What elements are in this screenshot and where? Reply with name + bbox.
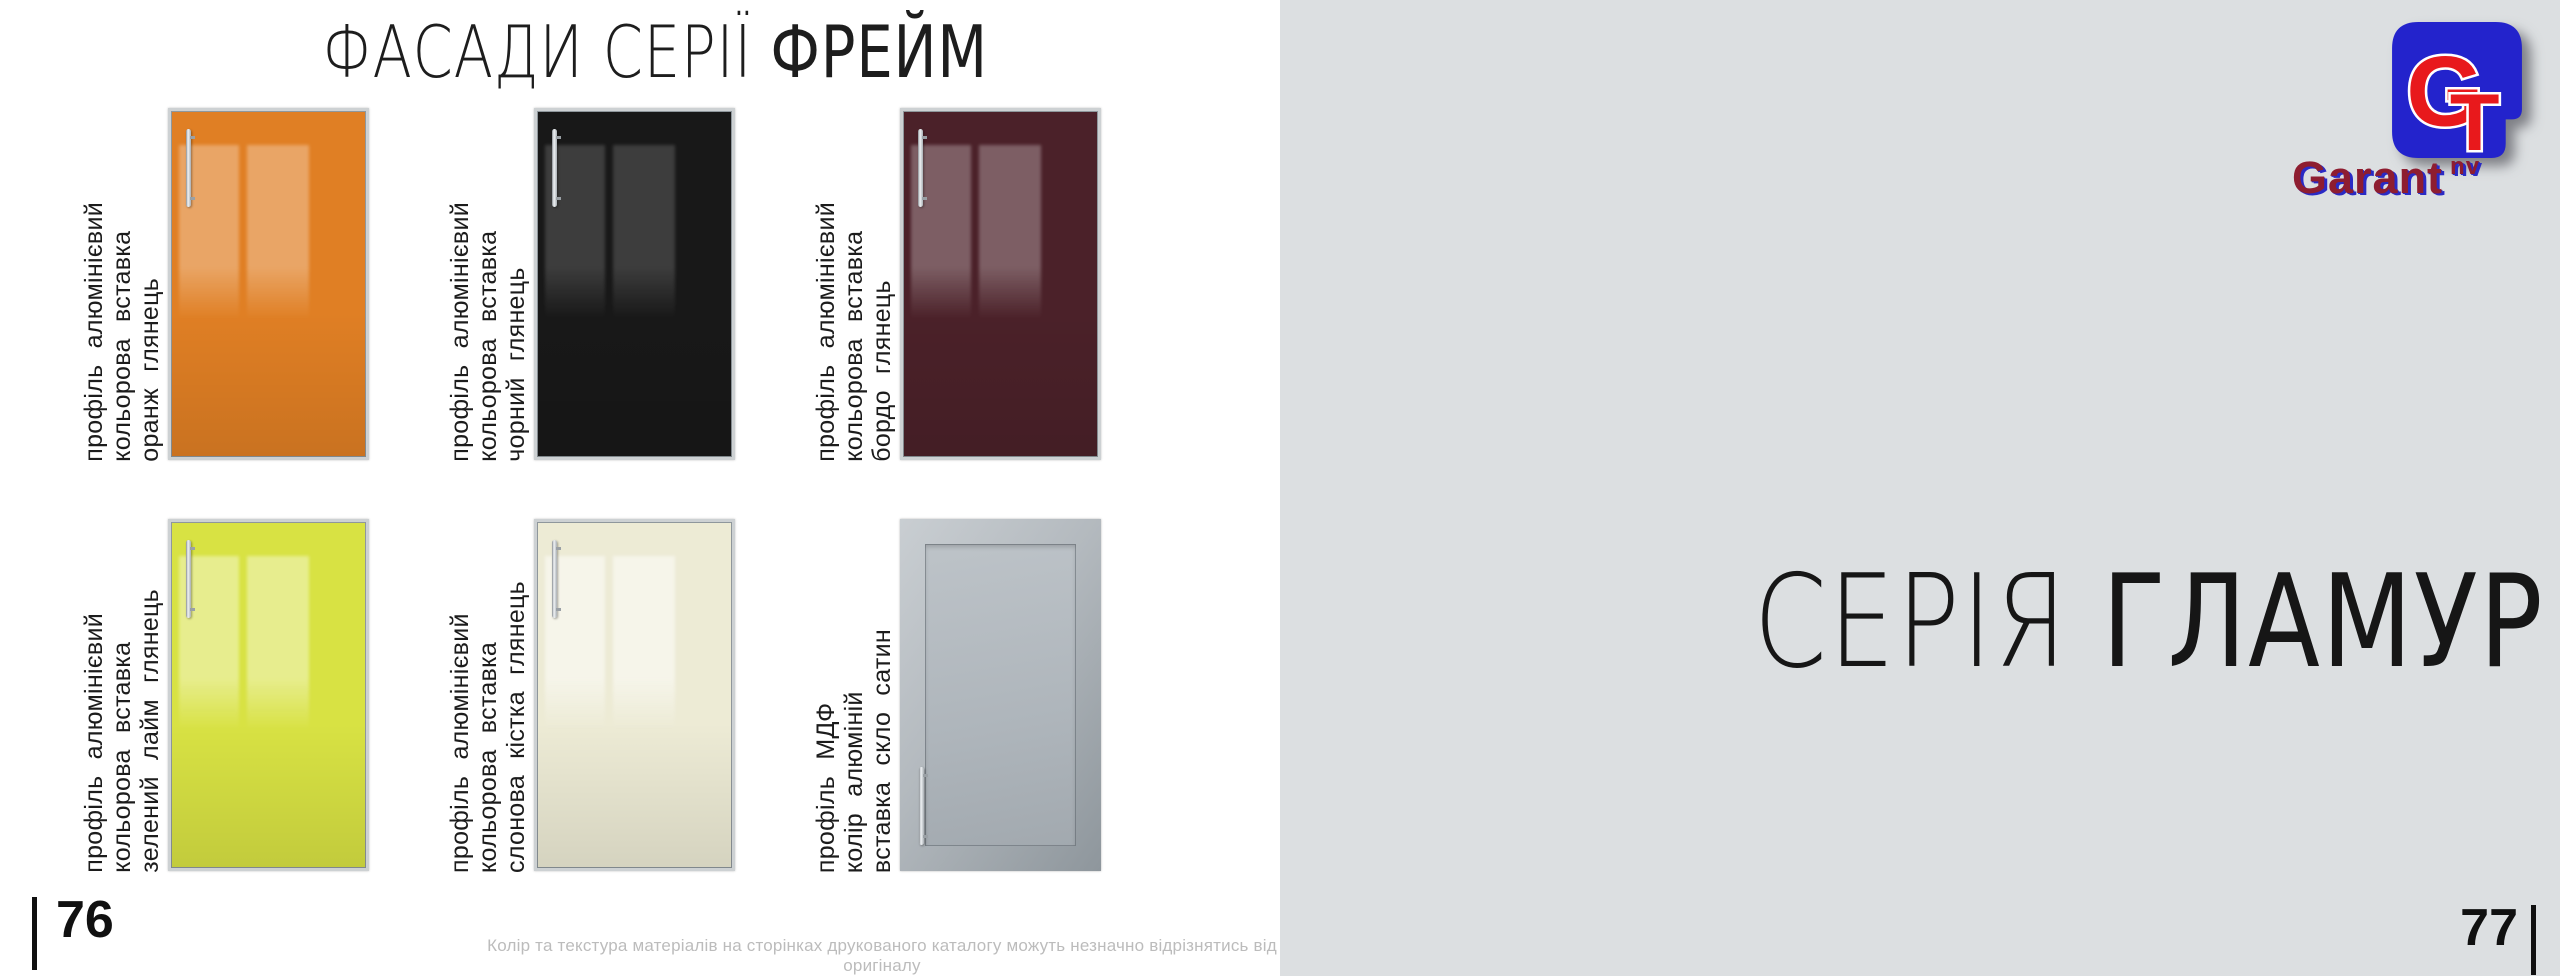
facade-label: профіль алюмінієвий кольорова вставка сл… <box>446 581 530 873</box>
facade-panel <box>900 108 1101 460</box>
label-line: кольорова вставка <box>108 589 136 873</box>
facade-card-satin-glass: профіль МДФ колір алюміній вставка скло … <box>812 519 1101 871</box>
facade-card-bordeaux: профіль алюмінієвий кольорова вставка бо… <box>812 108 1101 460</box>
facade-label: профіль алюмінієвий кольорова вставка зе… <box>80 589 164 873</box>
label-line: профіль алюмінієвий <box>446 581 474 873</box>
brand-name: Garantnv <box>2292 152 2480 204</box>
label-line: профіль алюмінієвий <box>812 202 840 462</box>
page-number-bar <box>32 897 37 970</box>
series-title-light: ФАСАДИ СЕРІЇ <box>322 10 752 94</box>
gloss-reflection <box>247 556 309 730</box>
facade-card-ivory: профіль алюмінієвий кольорова вставка сл… <box>446 519 735 871</box>
series-title-strong: ГЛАМУР <box>2102 548 2544 697</box>
label-line: оранж глянець <box>136 202 164 462</box>
label-line: профіль алюмінієвий <box>446 202 474 462</box>
facade-card-black: профіль алюмінієвий кольорова вставка чо… <box>446 108 735 460</box>
series-title-light: СЕРІЯ <box>1753 548 2068 697</box>
label-line: кольорова вставка <box>840 202 868 462</box>
label-line: чорний глянець <box>502 202 530 462</box>
page-number-left: 76 <box>56 890 114 950</box>
brand-text: Garant <box>2292 152 2443 203</box>
door-handle <box>552 129 557 207</box>
garant-logo-monogram: G T <box>2392 22 2522 160</box>
label-line: профіль алюмінієвий <box>80 202 108 462</box>
door-handle <box>918 129 923 207</box>
gloss-reflection <box>247 145 309 319</box>
brand-suffix: nv <box>2450 153 2480 180</box>
facade-panel <box>168 108 369 460</box>
label-line: вставка скло сатин <box>868 629 896 873</box>
label-line: зелений лайм глянець <box>136 589 164 873</box>
label-line: кольорова вставка <box>108 202 136 462</box>
label-line: кольорова вставка <box>474 581 502 873</box>
door-handle <box>919 767 924 845</box>
right-page-title: СЕРІЯ ГЛАМУР <box>1753 548 2544 697</box>
door-handle <box>186 540 191 618</box>
garant-logo: G T Garantnv <box>2290 22 2526 214</box>
logo-letter-t: T <box>2450 78 2500 160</box>
facade-panel <box>534 519 735 871</box>
facade-label: профіль алюмінієвий кольорова вставка ор… <box>80 202 164 462</box>
label-line: колір алюміній <box>840 629 868 873</box>
label-line: профіль алюмінієвий <box>80 589 108 873</box>
facade-panel <box>900 519 1101 871</box>
gloss-reflection <box>979 145 1041 319</box>
label-line: бордо глянець <box>868 202 896 462</box>
facade-label: профіль алюмінієвий кольорова вставка бо… <box>812 202 896 462</box>
facade-label: профіль МДФ колір алюміній вставка скло … <box>812 629 896 873</box>
facade-card-orange: профіль алюмінієвий кольорова вставка ор… <box>80 108 369 460</box>
page-number-right: 77 <box>2438 898 2518 958</box>
page-number-bar <box>2531 905 2536 975</box>
series-title-strong: ФРЕЙМ <box>770 10 988 94</box>
door-handle <box>552 540 557 618</box>
gloss-reflection <box>613 556 675 730</box>
facade-panel <box>168 519 369 871</box>
facade-card-lime: профіль алюмінієвий кольорова вставка зе… <box>80 519 369 871</box>
left-page-title: ФАСАДИ СЕРІЇ ФРЕЙМ <box>143 10 1167 94</box>
color-disclaimer: Колір та текстура матеріалів на сторінка… <box>482 936 1282 976</box>
gloss-reflection <box>613 145 675 319</box>
satin-glass-insert <box>925 544 1076 846</box>
label-line: кольорова вставка <box>474 202 502 462</box>
door-handle <box>186 129 191 207</box>
facade-label: профіль алюмінієвий кольорова вставка чо… <box>446 202 530 462</box>
label-line: слонова кістка глянець <box>502 581 530 873</box>
label-line: профіль МДФ <box>812 629 840 873</box>
facade-panel <box>534 108 735 460</box>
